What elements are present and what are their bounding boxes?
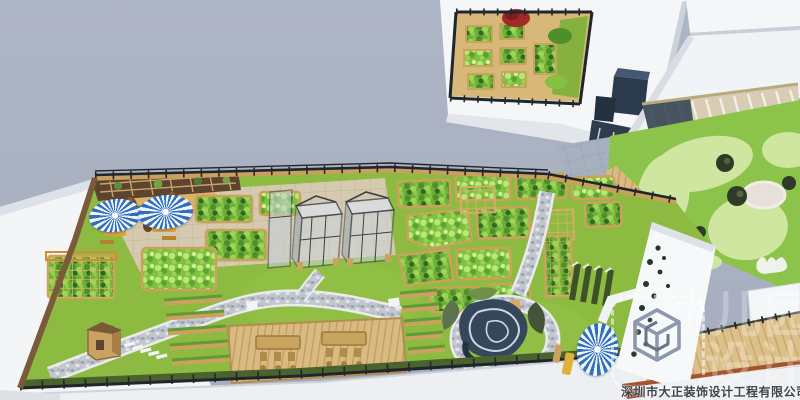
planting-bed xyxy=(407,209,472,249)
planting-bed xyxy=(398,250,453,286)
upper-fenced-garden xyxy=(450,9,592,104)
planting-bed xyxy=(466,26,492,42)
planting-bed xyxy=(468,74,494,89)
glass-greenhouses xyxy=(268,190,394,270)
greenhouse-2 xyxy=(342,192,394,266)
lattice-tall-bed xyxy=(544,236,573,297)
upper-raised-beds xyxy=(464,24,572,89)
deck-table xyxy=(256,336,300,371)
garden-sign xyxy=(246,300,258,309)
watermark-company-name: 深圳市大正装饰设计工程有限公司 xyxy=(621,383,800,400)
planting-bed xyxy=(456,248,511,280)
planting-bed xyxy=(464,50,492,66)
planting-bed xyxy=(502,72,526,87)
rooftop-garden-render: 幼儿园 设计 深圳市大正装饰设计工程有限公司 xyxy=(0,0,800,400)
planting-bed xyxy=(500,48,526,64)
planting-bed xyxy=(534,44,556,74)
planting-bed xyxy=(196,196,252,222)
garden-sign xyxy=(388,297,400,306)
watermark-logo-frame xyxy=(611,295,705,389)
bed-trellis-frame xyxy=(460,186,495,213)
planting-bed xyxy=(398,180,451,208)
sand-pit xyxy=(743,182,785,208)
planting-bed xyxy=(142,248,216,290)
greenhouse-1 xyxy=(292,196,342,270)
deck-table xyxy=(322,332,366,367)
greenhouse-sliver xyxy=(268,190,292,268)
shrub xyxy=(545,75,567,89)
shrub xyxy=(548,28,572,44)
planting-bed xyxy=(585,202,622,227)
